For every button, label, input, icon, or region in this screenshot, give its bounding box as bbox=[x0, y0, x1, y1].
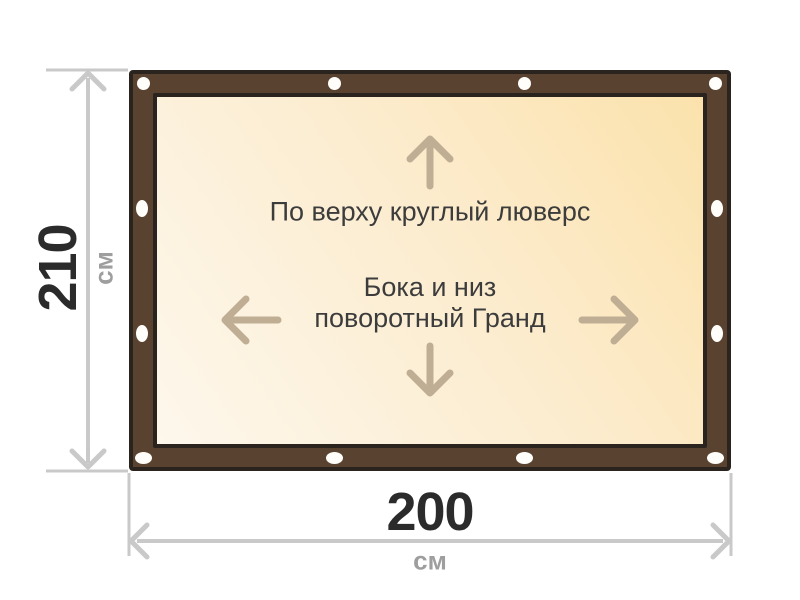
grommet-oval-v bbox=[711, 200, 723, 217]
grommet-oval-h bbox=[516, 452, 533, 464]
direction-arrows bbox=[157, 97, 703, 444]
arrow-down-icon bbox=[410, 346, 450, 393]
grommet-oval-v bbox=[136, 200, 148, 217]
side-grommet-note: Бока и низ поворотный Гранд bbox=[314, 272, 545, 334]
banner-frame: По верху круглый люверс Бока и низ повор… bbox=[129, 70, 731, 471]
arrow-left-icon bbox=[225, 299, 278, 341]
grommet-circle bbox=[709, 77, 722, 90]
side-grommet-note-line2: поворотный Гранд bbox=[314, 303, 545, 334]
grommet-oval-v bbox=[711, 325, 723, 342]
grommet-oval-h bbox=[326, 452, 343, 464]
grommet-oval-v bbox=[136, 325, 148, 342]
banner-panel: По верху круглый люверс Бока и низ повор… bbox=[153, 93, 707, 448]
grommet-oval-h bbox=[707, 452, 724, 464]
top-grommet-note: По верху круглый люверс bbox=[270, 197, 591, 228]
banner-spec-diagram: 210 см 200 см По верху круглый люверс Бо… bbox=[0, 0, 800, 600]
side-grommet-note-line1: Бока и низ bbox=[314, 272, 545, 303]
arrow-up-icon bbox=[410, 139, 450, 186]
grommet-oval-h bbox=[135, 452, 152, 464]
grommet-circle bbox=[328, 77, 341, 90]
width-value: 200 bbox=[386, 481, 473, 543]
grommet-circle bbox=[137, 77, 150, 90]
width-unit: см bbox=[413, 546, 447, 577]
grommet-circle bbox=[518, 77, 531, 90]
arrow-right-icon bbox=[582, 299, 635, 341]
height-value: 210 bbox=[27, 224, 89, 311]
height-unit: см bbox=[89, 251, 120, 285]
